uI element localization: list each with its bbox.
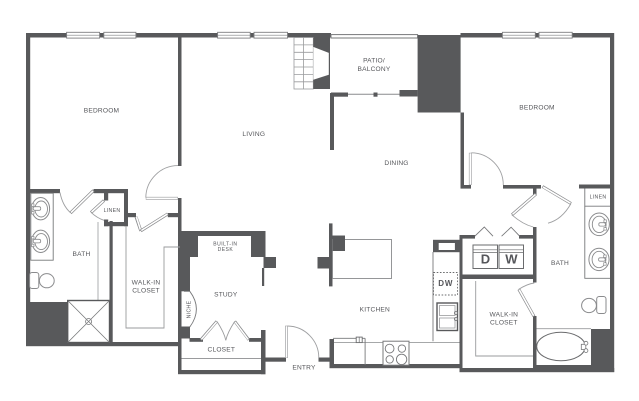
svg-text:CLOSET: CLOSET <box>208 347 236 354</box>
svg-text:PATIO/: PATIO/ <box>363 58 385 65</box>
svg-text:KITCHEN: KITCHEN <box>360 307 390 314</box>
svg-text:NICHE: NICHE <box>187 300 193 318</box>
svg-text:BATH: BATH <box>551 260 569 267</box>
svg-text:BATH: BATH <box>73 251 91 258</box>
svg-text:LINEN: LINEN <box>590 195 607 201</box>
svg-text:BALCONY: BALCONY <box>358 66 391 73</box>
svg-text:LIVING: LIVING <box>242 131 265 138</box>
svg-text:WALK-IN: WALK-IN <box>489 311 518 318</box>
svg-text:DINING: DINING <box>384 160 408 167</box>
svg-text:BEDROOM: BEDROOM <box>519 104 554 111</box>
svg-text:WALK-IN: WALK-IN <box>132 279 161 286</box>
svg-text:W: W <box>505 252 518 267</box>
svg-text:DESK: DESK <box>218 247 234 253</box>
svg-text:DW: DW <box>438 279 453 288</box>
svg-text:LINEN: LINEN <box>104 208 121 214</box>
svg-text:ENTRY: ENTRY <box>292 365 316 372</box>
svg-text:CLOSET: CLOSET <box>132 288 160 295</box>
svg-text:STUDY: STUDY <box>214 291 238 298</box>
svg-text:CLOSET: CLOSET <box>490 319 518 326</box>
svg-text:D: D <box>481 252 490 267</box>
svg-text:BEDROOM: BEDROOM <box>84 108 119 115</box>
